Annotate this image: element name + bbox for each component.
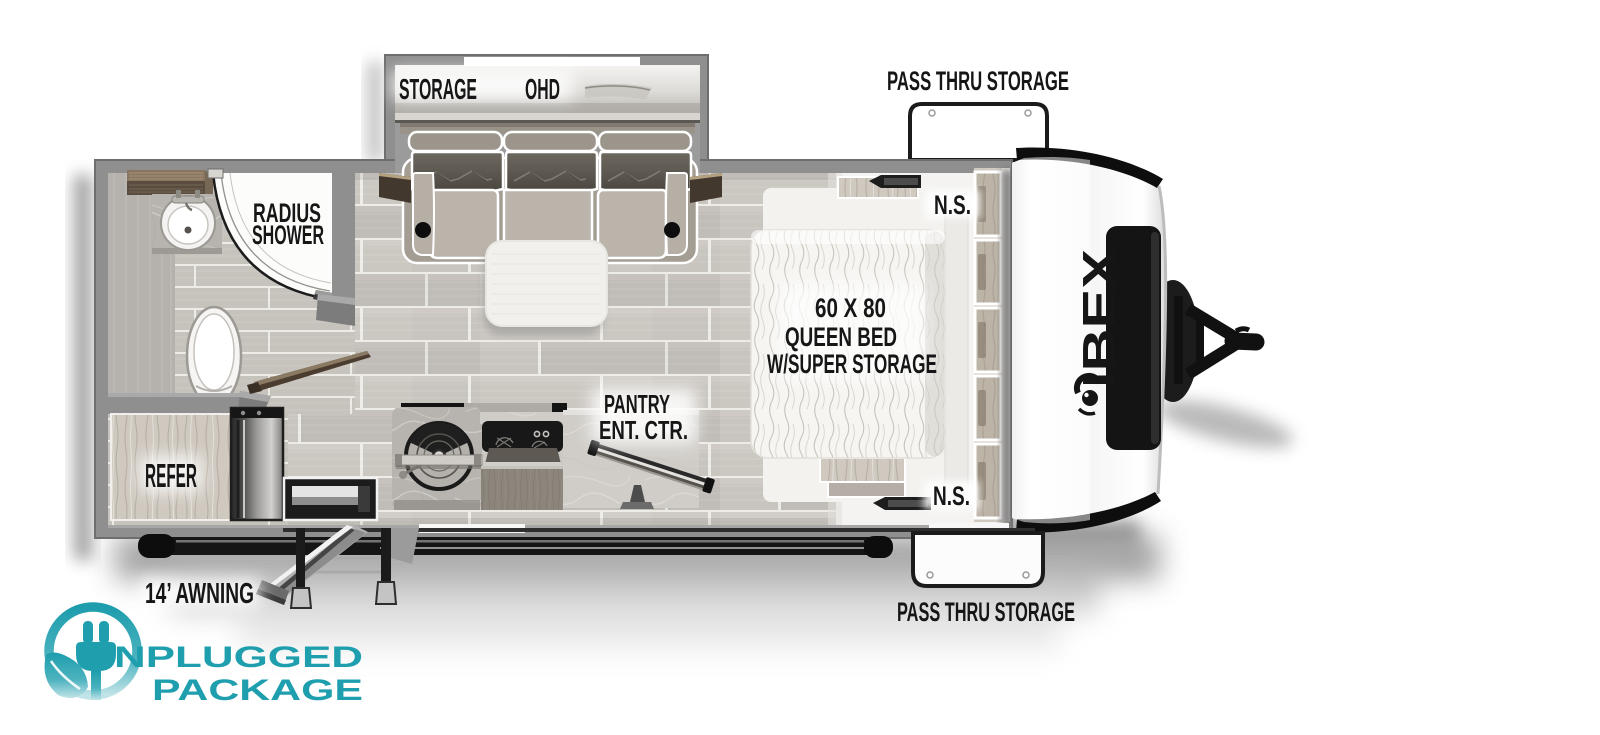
svg-text:W/SUPER STORAGE: W/SUPER STORAGE: [767, 349, 937, 379]
svg-text:14’ AWNING: 14’ AWNING: [145, 578, 254, 610]
svg-text:N.S.: N.S.: [933, 481, 970, 511]
svg-text:STORAGE: STORAGE: [399, 74, 477, 106]
svg-text:ENT. CTR.: ENT. CTR.: [599, 415, 688, 445]
svg-text:PACKAGE: PACKAGE: [152, 674, 363, 707]
svg-text:60 X 80: 60 X 80: [815, 293, 886, 323]
svg-text:NPLUGGED: NPLUGGED: [114, 641, 363, 674]
svg-text:QUEEN BED: QUEEN BED: [785, 322, 897, 352]
svg-text:IBEX: IBEX: [1073, 249, 1125, 388]
svg-text:REFER: REFER: [145, 457, 197, 494]
svg-text:PASS THRU STORAGE: PASS THRU STORAGE: [897, 597, 1075, 627]
svg-text:OHD: OHD: [525, 74, 560, 106]
svg-text:PASS THRU STORAGE: PASS THRU STORAGE: [887, 66, 1069, 96]
svg-text:SHOWER: SHOWER: [252, 220, 324, 250]
svg-text:N.S.: N.S.: [934, 190, 971, 220]
